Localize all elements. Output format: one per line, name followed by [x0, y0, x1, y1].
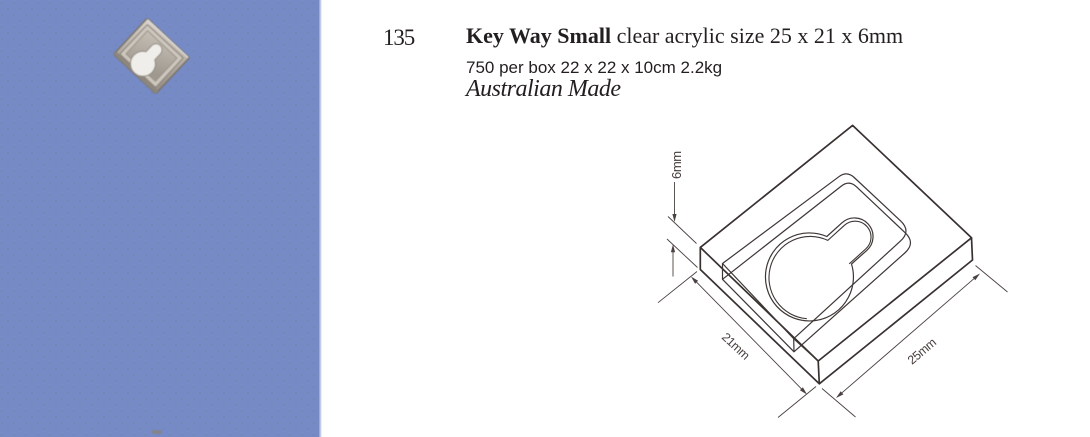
svg-text:25mm: 25mm — [905, 335, 939, 367]
svg-text:6mm: 6mm — [669, 151, 684, 179]
svg-text:21mm: 21mm — [719, 330, 752, 363]
